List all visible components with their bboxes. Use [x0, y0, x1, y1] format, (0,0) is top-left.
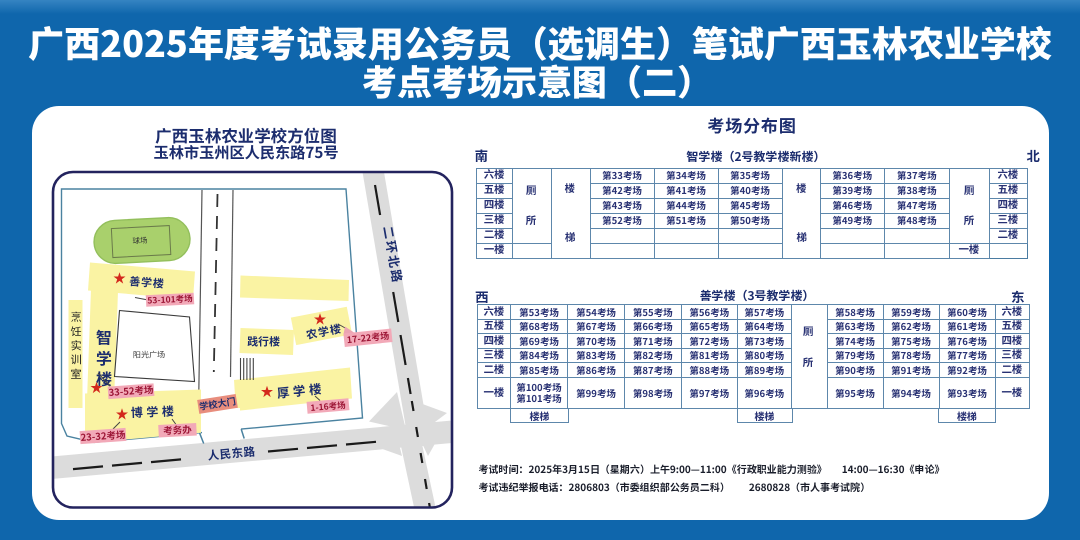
- svg-text:球场: 球场: [132, 235, 148, 247]
- svg-text:践行楼: 践行楼: [247, 334, 280, 350]
- svg-text:室: 室: [71, 366, 82, 382]
- svg-text:17-22考场: 17-22考场: [346, 329, 390, 346]
- svg-text:考务办: 考务办: [163, 422, 192, 437]
- svg-text:善学楼: 善学楼: [129, 273, 166, 292]
- svg-text:阳光广场: 阳光广场: [133, 350, 165, 361]
- svg-text:博学楼: 博学楼: [131, 402, 178, 421]
- svg-text:53-101考场: 53-101考场: [147, 292, 193, 306]
- svg-text:23-32考场: 23-32考场: [80, 427, 126, 444]
- svg-text:1-16考场: 1-16考场: [310, 399, 347, 414]
